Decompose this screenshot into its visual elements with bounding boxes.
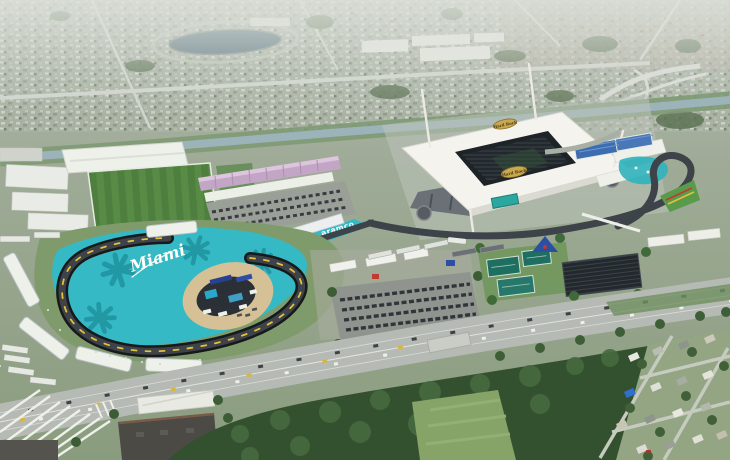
aerial-scene: Hard Rock Hard Rock xyxy=(0,0,730,460)
spiral-ramp-west xyxy=(417,206,431,220)
open-grass-field xyxy=(412,390,516,460)
red-car xyxy=(646,450,651,453)
top-haze xyxy=(0,0,730,70)
office-building xyxy=(0,440,58,460)
aerial-photo: Hard Rock Hard Rock xyxy=(0,0,730,460)
